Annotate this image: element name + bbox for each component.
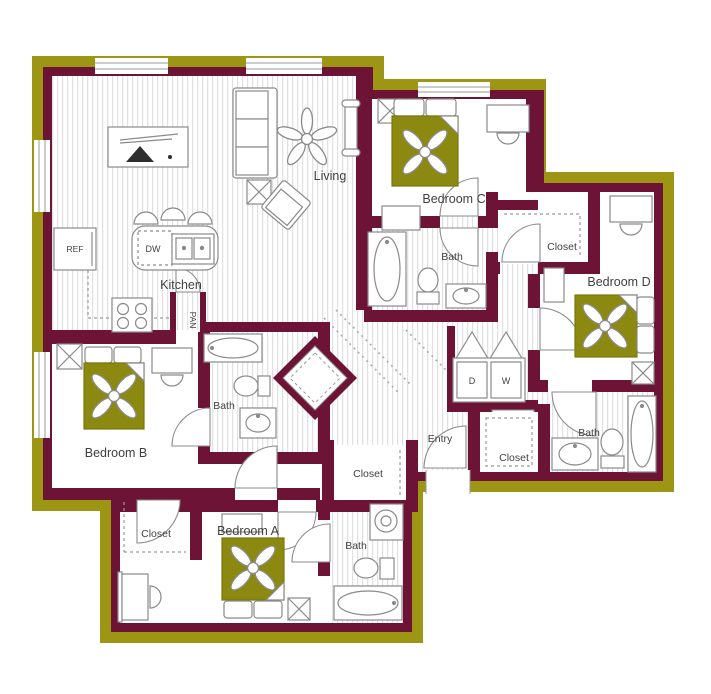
- console-table-icon: [342, 100, 360, 156]
- label-dryer: D: [469, 376, 476, 386]
- label-bedroom-c: Bedroom C: [422, 192, 485, 206]
- kitchen-island-icon: [132, 208, 218, 270]
- toilet-icon: [234, 376, 270, 396]
- label-bath-upper: Bath: [441, 251, 463, 263]
- label-washer: W: [502, 376, 511, 386]
- dresser-icon: [544, 268, 564, 302]
- label-dw: DW: [146, 244, 161, 254]
- label-closet-hall: Closet: [353, 468, 383, 480]
- sofa-icon: [233, 88, 277, 178]
- nightstand-icon: [632, 362, 654, 384]
- label-bath-left: Bath: [213, 400, 235, 412]
- label-closet-d: Closet: [499, 452, 529, 464]
- bathtub-icon: [628, 396, 656, 472]
- sink-icon: [552, 438, 598, 470]
- window-left-2: [34, 352, 50, 438]
- label-closet-cd: Closet: [547, 241, 577, 253]
- label-living: Living: [314, 169, 347, 183]
- sink-icon: [446, 284, 486, 308]
- sink-icon: [370, 504, 403, 540]
- label-bath-lower: Bath: [345, 540, 367, 552]
- nightstand-icon: [288, 598, 310, 620]
- label-bath-right: Bath: [578, 427, 600, 439]
- hall-floor-7: [330, 392, 412, 445]
- floorplan-page: Living Kitchen REF DW PAN Bedroom C Bath…: [0, 0, 711, 694]
- window-top-1: [95, 58, 168, 74]
- toilet-icon: [601, 429, 624, 468]
- label-ref: REF: [67, 244, 84, 254]
- label-closet-b: Closet: [141, 528, 171, 540]
- toilet-icon: [354, 558, 394, 579]
- label-kitchen: Kitchen: [160, 278, 202, 292]
- sink-icon: [240, 408, 276, 438]
- label-pan: PAN: [188, 312, 198, 329]
- floor-plan: Living Kitchen REF DW PAN Bedroom C Bath…: [0, 0, 711, 694]
- island-sink-icon: [172, 234, 214, 264]
- nightstand-icon: [57, 344, 82, 369]
- window-left-1: [34, 140, 50, 212]
- entry-opening: [426, 470, 470, 494]
- window-top-2: [246, 58, 322, 74]
- dresser-icon: [382, 206, 420, 230]
- bed-icon: [575, 295, 654, 357]
- label-bedroom-d: Bedroom D: [587, 275, 650, 289]
- label-entry: Entry: [428, 433, 453, 445]
- bathtub-icon: [334, 586, 402, 620]
- bathtub-icon: [204, 334, 262, 362]
- toilet-icon: [417, 268, 439, 304]
- label-bedroom-a: Bedroom A: [217, 524, 280, 538]
- window-bedroom-c: [418, 82, 490, 97]
- bed-icon: [84, 347, 144, 429]
- label-bedroom-b: Bedroom B: [85, 446, 148, 460]
- bathtub-icon: [368, 232, 406, 306]
- stove-icon: [112, 298, 152, 332]
- tv-console-icon: [108, 127, 188, 167]
